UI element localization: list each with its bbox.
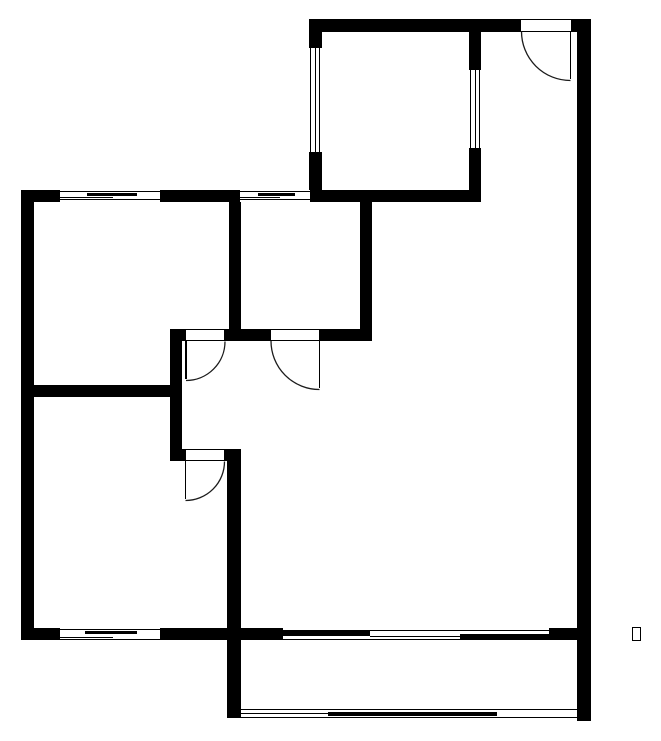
wall-segment <box>577 19 591 721</box>
window-bottom-left-glazing-line <box>60 637 113 638</box>
window-toproom-right-glazing-line <box>470 70 471 148</box>
window-toproom-left-glazing-line <box>315 48 316 152</box>
window-bottom-living-glazing-line <box>283 631 370 636</box>
wall-segment <box>160 190 240 202</box>
door-leaf <box>570 31 572 79</box>
wall-segment <box>320 329 372 341</box>
window-top-left-glazing-line <box>60 199 160 200</box>
window-bottom-left-glazing-line <box>85 631 137 634</box>
window-top-middle-glazing-line <box>240 197 280 198</box>
door-opening-middle-room <box>270 329 320 341</box>
window-toproom-left-glazing-line <box>319 48 320 152</box>
wall-segment <box>360 202 372 341</box>
window-top-left-glazing-line <box>60 197 113 198</box>
wall-segment <box>21 628 60 640</box>
door-opening-lower-left-room <box>185 449 225 461</box>
wall-segment <box>309 19 520 32</box>
wall-segment <box>21 385 182 397</box>
window-bottom-left-glazing-line <box>60 629 160 630</box>
wall-segment <box>21 190 34 640</box>
window-bottom-living-glazing-line <box>460 634 549 640</box>
window-bottom-living-glazing-line <box>283 639 461 640</box>
door-leaf <box>185 461 187 499</box>
window-bottom-living-glazing-line <box>370 636 460 637</box>
door-arc-middle-room <box>271 341 320 390</box>
window-balcony-front-glazing-line <box>328 712 497 716</box>
window-bottom-left-glazing-line <box>60 639 160 640</box>
door-leaf <box>319 341 321 388</box>
missing-glyph-box <box>632 627 641 641</box>
window-top-middle-glazing-line <box>258 193 295 196</box>
window-toproom-left-glazing-line <box>310 48 311 152</box>
window-top-middle-glazing-line <box>240 199 310 200</box>
door-opening-left-room <box>185 329 225 341</box>
window-top-left-glazing-line <box>60 191 160 192</box>
door-leaf <box>185 341 187 379</box>
window-top-left-glazing-line <box>87 193 137 196</box>
wall-segment <box>549 628 577 640</box>
door-arc-lower-left-room <box>186 462 225 501</box>
wall-segment <box>310 190 481 202</box>
floor-plan <box>0 0 661 741</box>
wall-segment <box>160 628 241 640</box>
door-arc-left-room <box>186 342 225 381</box>
window-toproom-right-glazing-line <box>475 70 476 148</box>
wall-segment <box>170 329 185 341</box>
wall-segment <box>469 32 481 70</box>
wall-segment <box>225 329 270 341</box>
window-balcony-front-glazing-line <box>241 713 329 714</box>
wall-segment <box>170 341 182 461</box>
window-top-middle-glazing-line <box>240 191 310 192</box>
window-balcony-front-glazing-line <box>241 709 577 710</box>
window-toproom-right-glazing-line <box>479 70 480 148</box>
wall-segment <box>227 449 241 718</box>
window-top-middle <box>240 190 310 202</box>
door-arc-entry <box>522 32 571 81</box>
wall-segment <box>229 202 241 329</box>
wall-segment <box>309 32 322 48</box>
window-balcony-front-glazing-line <box>241 717 577 718</box>
window-top-left <box>60 190 160 202</box>
door-opening-entry <box>520 19 572 32</box>
wall-segment <box>241 628 283 640</box>
